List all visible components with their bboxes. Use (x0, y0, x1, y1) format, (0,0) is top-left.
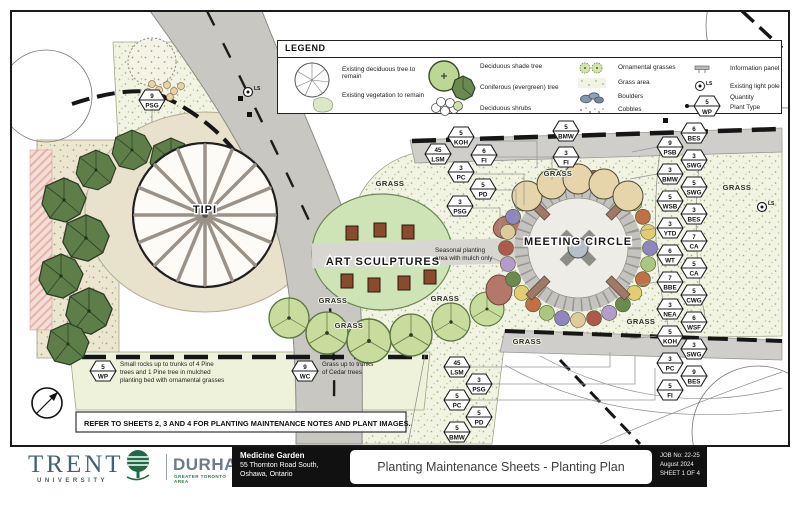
plant-tag-WSF: 6WSF (681, 312, 707, 332)
plant-tag-WSB: 5WSB (657, 191, 683, 211)
project-address1: 55 Thornton Road South, (240, 461, 318, 471)
logos: TRENT UNIVERSITY DURHAM GREATER TORONTO … (10, 447, 232, 487)
legend-title: LEGEND (285, 43, 326, 53)
plant-tag-WC: 9WC (292, 361, 318, 381)
svg-text:CWG: CWG (686, 298, 701, 305)
planting-cluster (641, 225, 656, 240)
svg-text:3: 3 (564, 150, 568, 157)
sheet-number: SHEET 1 OF 4 (660, 470, 700, 479)
svg-text:of Cedar trees: of Cedar trees (322, 369, 362, 376)
svg-text:PD: PD (475, 420, 484, 427)
svg-text:BES: BES (688, 217, 701, 224)
planting-plan-sheet: LS LS (0, 0, 800, 517)
svg-text:SWG: SWG (686, 190, 701, 197)
plant-tag-NEA: 3NEA (657, 299, 683, 319)
svg-text:WT: WT (665, 258, 675, 265)
svg-text:9: 9 (692, 369, 696, 376)
svg-text:Seasonal planting: Seasonal planting (435, 247, 486, 254)
plant-tag-PC: 3PC (448, 162, 474, 182)
svg-text:PSG: PSG (145, 103, 158, 110)
svg-text:REFER TO SHEETS 2, 3 AND 4 FOR: REFER TO SHEETS 2, 3 AND 4 FOR PLANTING … (84, 419, 411, 428)
plant-tag-BMW: 3BMW (657, 164, 683, 184)
legend-rule (278, 57, 781, 58)
svg-text:3: 3 (458, 199, 462, 206)
svg-text:3: 3 (692, 342, 696, 349)
planting-cluster (571, 313, 586, 328)
legend-label-cobbles: Cobbles (618, 106, 688, 113)
plant-tag-WP: 5WP (90, 361, 116, 381)
plant-tag-FI: 6FI (471, 145, 497, 165)
plant-tag-PSG: 9PSG (139, 90, 165, 110)
trent-tree-icon (123, 448, 153, 482)
svg-text:BES: BES (688, 379, 701, 386)
svg-text:LS: LS (706, 81, 713, 87)
wp-note: Small rocks up to trunks of 4 Pine trees… (120, 361, 224, 384)
trent-logo: TRENT (28, 451, 124, 479)
svg-text:BMW: BMW (662, 177, 678, 184)
legend-label-quantity: Quantity (730, 94, 785, 101)
project-address2: Oshawa, Ontario (240, 470, 318, 480)
svg-text:3: 3 (692, 153, 696, 160)
grass-label: GRASS (319, 296, 348, 305)
plant-tag-FI: 5FI (657, 380, 683, 400)
svg-text:CA: CA (689, 271, 699, 278)
plant-tag-SWG: 3SWG (681, 339, 707, 359)
svg-text:5: 5 (668, 194, 672, 201)
svg-text:WC: WC (300, 374, 311, 381)
plant-tag-FI: 3FI (553, 147, 579, 167)
svg-text:BMW: BMW (449, 435, 465, 442)
planting-cluster (500, 257, 515, 272)
svg-text:5: 5 (455, 425, 459, 432)
plant-tag-YTD: 3YTD (657, 218, 683, 238)
svg-text:Grass up to trunks: Grass up to trunks (322, 361, 373, 368)
planting-cluster (643, 241, 658, 256)
svg-text:YTD: YTD (664, 231, 677, 238)
svg-text:trees and 1 Pine tree in mulch: trees and 1 Pine tree in mulched (120, 369, 211, 376)
sheet-meta: JOB No: 22-25 August 2024 SHEET 1 OF 4 (660, 452, 700, 479)
refer-note-box: REFER TO SHEETS 2, 3 AND 4 FOR PLANTING … (76, 412, 411, 432)
svg-text:FI: FI (481, 158, 487, 165)
svg-text:5: 5 (668, 383, 672, 390)
svg-text:5: 5 (692, 180, 696, 187)
plant-tag-KOH: 5KOH (448, 127, 474, 147)
legend-label-light-pole: Existing light pole (730, 83, 790, 90)
svg-text:SWG: SWG (686, 352, 701, 359)
svg-text:5: 5 (481, 182, 485, 189)
svg-text:45: 45 (434, 147, 442, 154)
durham-sub-label: GREATER TORONTO AREA (174, 474, 232, 484)
plant-tag-CWG: 5CWG (681, 285, 707, 305)
svg-text:FI: FI (667, 393, 673, 400)
svg-text:45: 45 (453, 360, 461, 367)
svg-text:PSG: PSG (453, 209, 466, 216)
planting-cluster (539, 305, 554, 320)
ornamental-grasses-icon (578, 62, 606, 74)
svg-text:3: 3 (459, 165, 463, 172)
plant-tag-PSG: 3PSG (466, 374, 492, 394)
svg-text:3: 3 (668, 302, 672, 309)
legend-label-plant-type: Plant Type (730, 104, 785, 111)
grass-label: GRASS (723, 183, 752, 192)
svg-text:LSM: LSM (450, 370, 463, 377)
svg-text:9: 9 (668, 140, 672, 147)
grass-area-icon (578, 78, 606, 88)
svg-text:5: 5 (564, 124, 568, 131)
legend-label-info-panel: Information panel (730, 65, 785, 72)
svg-text:9: 9 (150, 93, 154, 100)
plant-tag-PSG: 3PSG (447, 196, 473, 216)
legend: LEGEND Existing deciduous tree to remain… (277, 40, 782, 114)
svg-text:5: 5 (477, 410, 481, 417)
svg-text:5: 5 (455, 393, 459, 400)
svg-text:3: 3 (668, 221, 672, 228)
svg-text:KOH: KOH (663, 339, 677, 346)
plant-tag-KOH: 5KOH (657, 326, 683, 346)
svg-text:NEA: NEA (663, 312, 677, 319)
svg-text:PC: PC (666, 366, 675, 373)
svg-text:5: 5 (692, 288, 696, 295)
plant-tag-SWG: 3SWG (681, 150, 707, 170)
svg-text:3: 3 (668, 167, 672, 174)
grass-label: GRASS (513, 337, 542, 346)
planting-cluster (602, 305, 617, 320)
job-number: JOB No: 22-25 (660, 452, 700, 461)
svg-text:5: 5 (668, 329, 672, 336)
plant-tag-BES: 3BES (681, 204, 707, 224)
project-name: Medicine Garden (240, 451, 318, 461)
planting-cluster (635, 209, 650, 224)
grass-label: GRASS (376, 179, 405, 188)
planting-cluster (499, 241, 514, 256)
plant-tag-PD: 5PD (466, 407, 492, 427)
svg-text:9: 9 (303, 364, 307, 371)
light-pole-label: LS (254, 86, 261, 92)
plant-tag-BMW: 5BMW (553, 121, 579, 141)
svg-text:planting bed with ornamental g: planting bed with ornamental grasses (120, 377, 224, 384)
svg-text:PC: PC (457, 175, 466, 182)
svg-text:SWG: SWG (686, 163, 701, 170)
planting-cluster (506, 209, 521, 224)
quantity-tag-icon: 5 WP (684, 93, 724, 119)
art-sculptures-label: ART SCULPTURES (326, 256, 440, 268)
plant-tag-CA: 5CA (681, 258, 707, 278)
svg-text:BES: BES (688, 136, 701, 143)
grass-label: GRASS (627, 317, 656, 326)
grass-label: GRASS (335, 321, 364, 330)
title-bar: Medicine Garden 55 Thornton Road South, … (232, 447, 707, 487)
svg-text:5: 5 (692, 261, 696, 268)
legend-label-existing-tree: Existing deciduous tree to remain (342, 66, 426, 81)
svg-text:PC: PC (453, 403, 462, 410)
plant-tag-BMW: 5BMW (444, 422, 470, 442)
existing-tree-icon (290, 60, 340, 114)
svg-text:PSB: PSB (664, 150, 677, 157)
north-arrow (32, 388, 62, 418)
plant-tag-LSM: 45LSM (425, 144, 451, 164)
svg-text:CA: CA (689, 244, 699, 251)
svg-text:5: 5 (101, 364, 105, 371)
seasonal-note: Seasonal planting area with mulch only (435, 247, 493, 262)
plant-tag-PSB: 9PSB (657, 137, 683, 157)
svg-text:BBE: BBE (663, 285, 676, 292)
grass-label: GRASS (544, 169, 573, 178)
plant-tag-PC: 3PC (657, 353, 683, 373)
legend-label-existing-veg: Existing vegetation to remain (342, 92, 426, 99)
plant-tag-BES: 9BES (681, 366, 707, 386)
plant-tag-BBE: 7BBE (657, 272, 683, 292)
plant-tag-BES: 6BES (681, 123, 707, 143)
svg-text:FI: FI (563, 160, 569, 167)
title-block: TRENT UNIVERSITY DURHAM GREATER TORONTO … (10, 445, 790, 487)
grass-label: GRASS (431, 294, 460, 303)
svg-text:WSF: WSF (687, 325, 701, 332)
legend-label-orn-grasses: Ornamental grasses (618, 64, 688, 71)
svg-text:7: 7 (692, 234, 696, 241)
svg-text:5: 5 (459, 130, 463, 137)
light-pole-icon: LS (692, 79, 716, 93)
tree-symbols-icon (424, 60, 480, 116)
sheet-date: August 2024 (660, 461, 700, 470)
svg-text:LSM: LSM (431, 157, 444, 164)
svg-text:WP: WP (98, 374, 108, 381)
information-panel-icon (693, 64, 713, 74)
svg-text:7: 7 (668, 275, 672, 282)
planting-cluster (500, 225, 515, 240)
legend-label-grass-area: Grass area (618, 79, 688, 86)
svg-text:3: 3 (477, 377, 481, 384)
plant-tag-LSM: 45LSM (444, 357, 470, 377)
svg-text:KOH: KOH (454, 140, 468, 147)
svg-text:PD: PD (479, 192, 488, 199)
plant-tag-PC: 5PC (444, 390, 470, 410)
planting-cluster (587, 311, 602, 326)
sheet-title: Planting Maintenance Sheets - Planting P… (350, 450, 652, 484)
svg-text:6: 6 (482, 148, 486, 155)
svg-text:6: 6 (692, 315, 696, 322)
cobbles-icon (578, 106, 606, 115)
plant-tag-PD: 5PD (470, 179, 496, 199)
svg-text:WSB: WSB (663, 204, 678, 211)
svg-text:6: 6 (692, 126, 696, 133)
svg-text:6: 6 (668, 248, 672, 255)
project-info: Medicine Garden 55 Thornton Road South, … (240, 451, 318, 480)
planting-cluster (506, 272, 521, 287)
svg-text:PSG: PSG (472, 387, 485, 394)
light-pole-label: LS (768, 201, 775, 207)
legend-label-boulders: Boulders (618, 93, 688, 100)
svg-text:Small rocks up to trunks of 4: Small rocks up to trunks of 4 Pine (120, 361, 214, 368)
trent-university-label: UNIVERSITY (37, 478, 108, 484)
svg-text:area with mulch only: area with mulch only (435, 255, 493, 262)
boulders-icon (578, 91, 606, 104)
svg-text:WP: WP (702, 110, 712, 116)
plant-tag-SWG: 5SWG (681, 177, 707, 197)
tipi-label: TIPI (193, 204, 217, 216)
svg-text:3: 3 (692, 207, 696, 214)
plant-tag-WT: 6WT (657, 245, 683, 265)
planting-cluster (641, 257, 656, 272)
logo-divider (166, 454, 167, 480)
svg-text:BMW: BMW (558, 134, 574, 141)
meeting-circle-label: MEETING CIRCLE (524, 236, 632, 248)
planting-cluster (555, 311, 570, 326)
plant-tag-CA: 7CA (681, 231, 707, 251)
svg-text:3: 3 (668, 356, 672, 363)
